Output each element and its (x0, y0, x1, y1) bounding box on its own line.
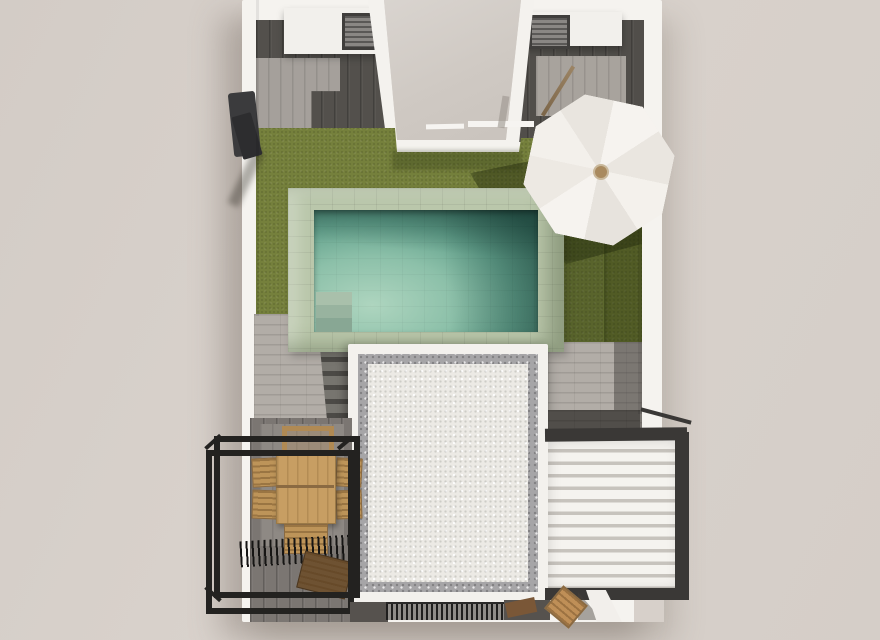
deck-strip-left-of-grate (350, 602, 388, 622)
louvered-roof-frame-top (545, 427, 687, 441)
pool-step-1 (316, 292, 352, 305)
pool-step-3 (316, 318, 352, 332)
aerial-render-scene (0, 0, 880, 640)
left-wall-inner-shadow (256, 0, 259, 316)
louvered-roof-frame-right (675, 432, 689, 600)
pergola-frame-front (206, 450, 354, 614)
pool-step-2 (316, 305, 352, 318)
ac-unit-right (529, 15, 570, 49)
gravel-roof-core (368, 364, 528, 582)
ventilation-grate (386, 602, 504, 620)
void-wall-cap-1 (426, 124, 464, 130)
lawn-shadow-void-band (392, 150, 522, 170)
louvered-roof-slats (548, 440, 680, 590)
bottom-beige-corner (634, 600, 664, 622)
parasol-hub (593, 164, 609, 180)
